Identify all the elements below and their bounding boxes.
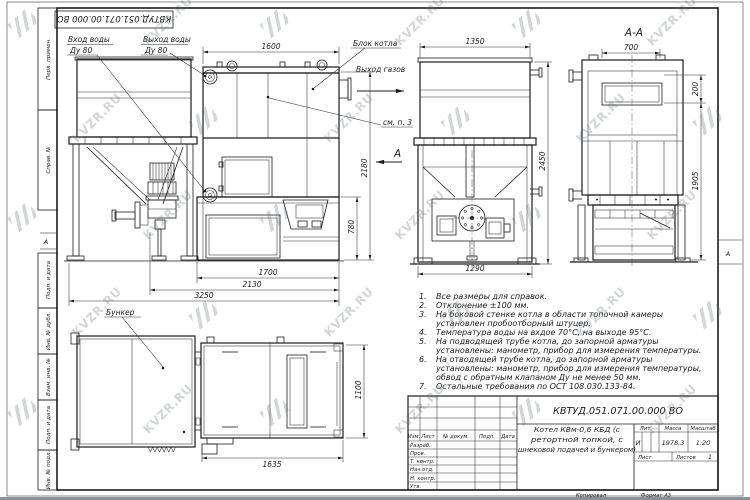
tb-mass-label: Масса xyxy=(665,426,682,432)
note-text: На боковой стенке котла в области топочн… xyxy=(436,310,712,328)
boiler-block-label: Блок котла xyxy=(353,39,398,48)
margin-label-perv-primen: Перв. примен. xyxy=(46,38,52,80)
dim-200: 200 xyxy=(691,82,700,97)
side-view-linework xyxy=(64,57,351,261)
margin-label-inv-dubl: Инв. № дубл. xyxy=(46,312,52,350)
dim-700: 700 xyxy=(624,43,639,52)
sheet-frame xyxy=(0,2,750,500)
note-text: Все размеры для справок. xyxy=(436,292,712,301)
dim-1290: 1290 xyxy=(465,264,484,273)
zone-mark-left: А xyxy=(43,238,48,246)
section-mark-a: А xyxy=(393,148,401,160)
section-view-dims xyxy=(602,49,706,260)
dim-1635: 1635 xyxy=(262,460,281,469)
tb-sheets-label: Листов xyxy=(675,455,696,461)
dim-1100: 1100 xyxy=(354,380,363,399)
dim-3250: 3250 xyxy=(194,291,213,300)
margin-label-inv-podl: Инв. № подл. xyxy=(46,450,52,489)
tb-row-razrab: Разраб. xyxy=(410,443,431,449)
margin-label-vzam-inv: Взам. инв. № xyxy=(46,358,52,396)
tb-col-izm: Изм. xyxy=(408,434,420,440)
tb-row-nachotd: Нач.отд. xyxy=(410,467,434,473)
notes-list: 1.Все размеры для справок. 2.Отклонение … xyxy=(419,292,712,391)
side-view-dims xyxy=(69,47,374,306)
dim-2180: 2180 xyxy=(360,158,369,177)
note-text: На отводящей трубе котла, до запорной ар… xyxy=(436,355,712,382)
note-item: 2.Отклонение ±100 мм. xyxy=(419,301,712,310)
drawing-canvas: Перв. примен. Справ. № Подп. и дата Инв.… xyxy=(0,0,750,500)
note-number: 6. xyxy=(419,355,436,382)
note-number: 5. xyxy=(419,337,436,355)
front-view-linework xyxy=(410,58,542,268)
plan-view-linework xyxy=(71,333,343,454)
footer-copied: Копировал xyxy=(576,493,607,499)
note-item: 5.На подводящей трубе котла, до запорной… xyxy=(419,337,712,355)
bunker-label: Бункер xyxy=(106,308,135,317)
tb-name-line3: шнековой подачей и бункером) xyxy=(518,446,636,454)
tb-row-nkontr: Н. контр. xyxy=(410,476,435,482)
dim-2130: 2130 xyxy=(242,280,261,289)
note-item: 7.Остальные требования по ОСТ 108.030.13… xyxy=(419,382,712,391)
note-item: 4.Температура воды на вхдое 70°С, на вых… xyxy=(419,328,712,337)
tb-lit-label: Лит. xyxy=(639,426,652,432)
note-item: 1.Все размеры для справок. xyxy=(419,292,712,301)
margin-label-podp-data-1: Подп. и дата xyxy=(46,260,52,299)
tb-col-podp: Подп. xyxy=(479,434,495,440)
note-number: 7. xyxy=(419,382,436,391)
dim-1600: 1600 xyxy=(261,42,280,51)
tb-mass-value: 1978,3 xyxy=(662,439,685,447)
tb-row-prov: Пров. xyxy=(410,451,425,457)
note-number: 2. xyxy=(419,301,436,310)
water-inlet-dn: Ду 80 xyxy=(69,46,92,55)
note-number: 1. xyxy=(419,292,436,301)
dim-1905: 1905 xyxy=(691,171,700,190)
section-title: А-А xyxy=(624,27,643,39)
note-item: 6.На отводящей трубе котла, до запорной … xyxy=(419,355,712,382)
note-text: На подводящей трубе котла, до запорной а… xyxy=(436,337,712,355)
note-text: Остальные требования по ОСТ 108.030.133-… xyxy=(436,382,712,391)
water-outlet-dn: Ду 80 xyxy=(144,46,167,55)
gas-outlet-label: Выход газов xyxy=(356,65,405,74)
note-text: Отклонение ±100 мм. xyxy=(436,301,712,310)
tb-row-utv: Утв. xyxy=(410,484,421,490)
tb-scale-value: 1:20 xyxy=(696,439,711,447)
dim-780: 780 xyxy=(347,220,356,235)
note-item: 3.На боковой стенке котла в области топо… xyxy=(419,310,712,328)
tb-row-tkontr: Т. контр. xyxy=(410,459,435,465)
footer-format: Формат А3 xyxy=(641,493,672,499)
tb-col-list: Лист xyxy=(420,434,435,440)
tb-col-data: Дата xyxy=(500,434,515,440)
dim-2450: 2450 xyxy=(538,151,547,170)
margin-label-podp-data-2: Подп. и дата xyxy=(46,405,52,444)
zone-mark-right: А xyxy=(725,250,730,258)
section-view-linework xyxy=(569,55,698,268)
top-stamp-code: КВТУД.051.071.00.000 ВО xyxy=(56,13,171,23)
plan-view-leaders xyxy=(104,317,164,369)
water-outlet-label: Выход воды xyxy=(143,35,191,44)
tb-name-line2: ретортной топкой, с xyxy=(530,436,624,444)
tb-scale-label: Масштаб xyxy=(690,426,716,432)
drawing-sheet: Перв. примен. Справ. № Подп. и дата Инв.… xyxy=(0,0,750,500)
dim-1700: 1700 xyxy=(258,268,277,277)
tb-col-docum: № докум. xyxy=(442,434,469,440)
dim-1350: 1350 xyxy=(465,37,484,46)
margin-label-sprav-no: Справ. № xyxy=(46,146,52,173)
see-note-label: см. п. 3 xyxy=(383,118,412,127)
note-number: 3. xyxy=(419,310,436,328)
note-number: 4. xyxy=(419,328,436,337)
tb-sheet-label: Лист xyxy=(637,455,652,461)
tb-name-line1: Котел КВм-0,6 КБД (с xyxy=(534,426,620,434)
tb-sheets-value: 1 xyxy=(708,453,712,461)
tb-lit-value: И xyxy=(636,439,641,447)
tb-designation: КВТУД.051.071.00.000 ВО xyxy=(553,406,683,417)
note-text: Температура воды на вхдое 70°С, на выход… xyxy=(436,328,712,337)
water-inlet-label: Вход воды xyxy=(68,35,110,44)
